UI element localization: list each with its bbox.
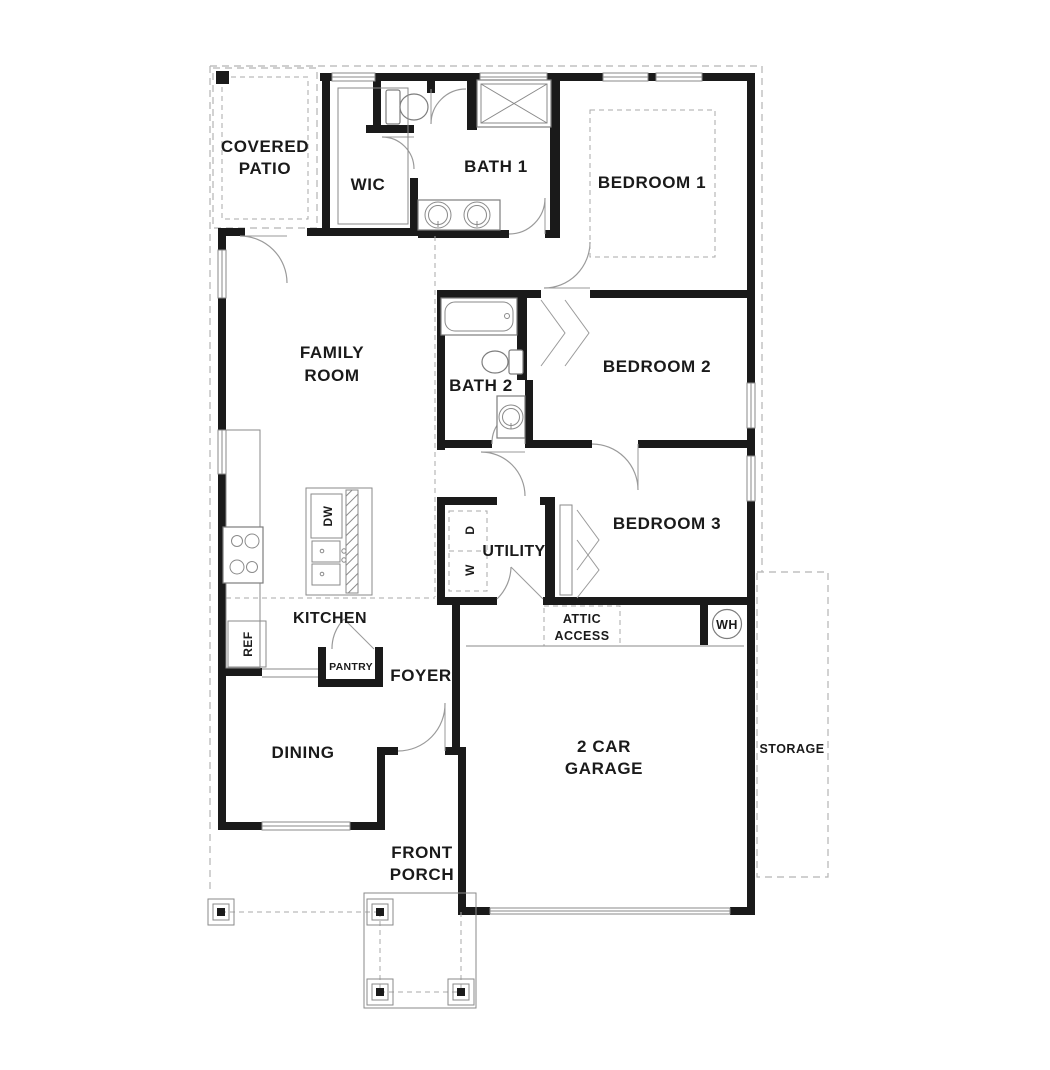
room-label-covered-patio-1: COVERED (221, 137, 309, 156)
room-label-wic: WIC (351, 175, 386, 194)
window (747, 383, 755, 428)
shower-fixture (477, 80, 551, 127)
washer-dryer-area: D W (449, 511, 487, 591)
room-label-front-porch-1: FRONT (391, 843, 453, 862)
room-label-family-room-2: ROOM (304, 366, 359, 385)
room-label-bedroom3: BEDROOM 3 (613, 514, 721, 533)
garage-entry-door (497, 567, 543, 599)
bedroom2-closet-bifold (541, 300, 589, 366)
room-label-storage: STORAGE (759, 742, 824, 756)
front-door (398, 703, 445, 751)
front-porch-structure (208, 893, 476, 1008)
exterior-walls (218, 73, 755, 915)
bedroom3-door (481, 452, 525, 496)
window (747, 456, 755, 501)
patio-column (216, 71, 229, 84)
room-label-attic-access-2: ACCESS (554, 629, 609, 643)
room-label-family-room-1: FAMILY (300, 343, 364, 362)
room-label-utility: UTILITY (482, 543, 545, 560)
water-heater: WH (713, 610, 742, 639)
kitchen-island: DW (306, 488, 372, 595)
water-heater-label: WH (716, 618, 738, 632)
storage-outline (757, 572, 828, 877)
toilet-fixture-bath2 (482, 350, 523, 374)
washer-label: W (463, 564, 477, 576)
room-label-bedroom2: BEDROOM 2 (603, 357, 711, 376)
cased-opening-kitchen-dining (262, 669, 318, 677)
room-label-covered-patio-2: PATIO (239, 159, 291, 178)
dryer-label: D (463, 525, 477, 534)
room-label-bedroom1: BEDROOM 1 (598, 173, 706, 192)
window (218, 430, 226, 474)
windows (218, 73, 755, 914)
floor-plan: REF DW D W WH (0, 0, 1050, 1070)
bedroom3-closet-bifold (560, 505, 599, 598)
refrigerator-label: REF (241, 631, 255, 657)
stove-fixture (223, 527, 263, 583)
room-label-dining: DINING (271, 743, 334, 762)
vanity-fixture-bath1 (418, 200, 500, 230)
room-label-bath2: BATH 2 (449, 376, 513, 395)
window (332, 73, 375, 81)
room-label-pantry: PANTRY (329, 661, 373, 673)
porch-column (448, 979, 474, 1005)
room-label-bath1: BATH 1 (464, 157, 528, 176)
room-label-garage-1: 2 CAR (577, 737, 631, 756)
window (656, 73, 702, 81)
wic-door (382, 137, 414, 169)
bedroom2-door (592, 444, 638, 490)
island-bar-counter (346, 490, 358, 593)
dishwasher-label: DW (321, 505, 335, 526)
window (603, 73, 648, 81)
room-label-kitchen: KITCHEN (293, 610, 367, 627)
water-closet-door (431, 89, 466, 124)
room-label-front-porch-2: PORCH (390, 865, 454, 884)
room-label-attic-access-1: ATTIC (563, 612, 601, 626)
window (262, 822, 350, 830)
floor-plan-canvas: REF DW D W WH (0, 0, 1050, 1070)
window (218, 250, 226, 298)
patio-door (240, 236, 287, 283)
room-label-foyer: FOYER (390, 666, 452, 685)
room-label-garage-2: GARAGE (565, 759, 643, 778)
bedroom1-door (544, 242, 590, 288)
garage-door (490, 908, 730, 914)
bath1-door (509, 198, 545, 234)
sink-fixture-bath2 (497, 396, 525, 438)
tub-fixture-bath2 (441, 298, 517, 335)
toilet-fixture-bath1 (386, 90, 428, 124)
